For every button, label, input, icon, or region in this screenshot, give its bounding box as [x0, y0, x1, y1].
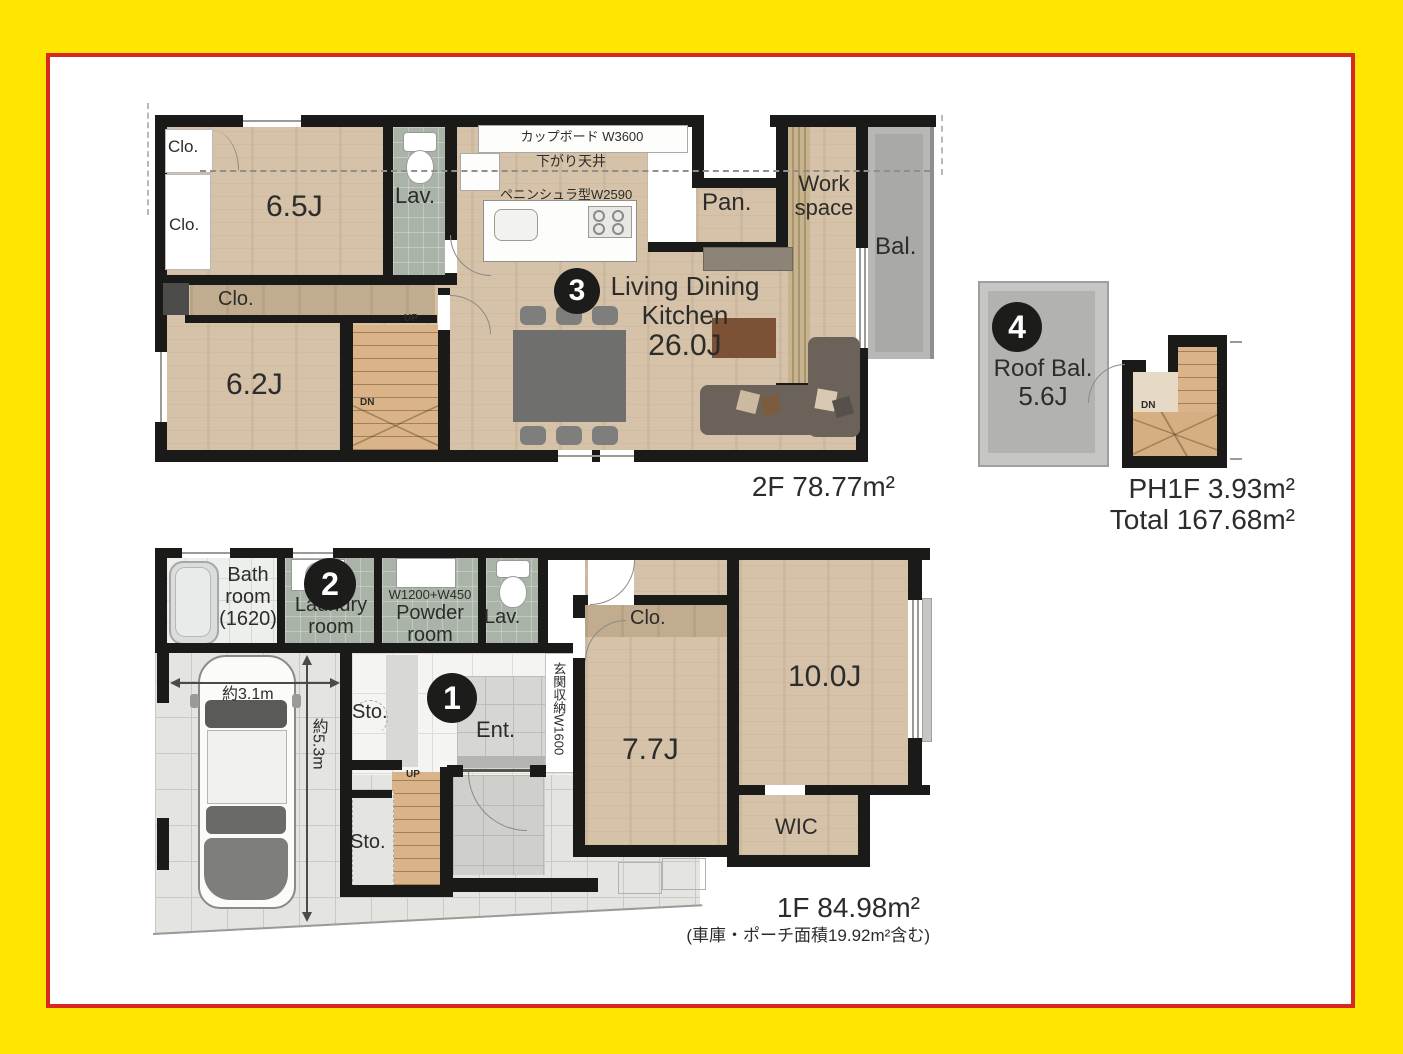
fridge — [460, 153, 500, 191]
powder-line1: Powder — [396, 602, 464, 624]
wall — [1122, 456, 1227, 468]
storage-upper-label: Sto. — [352, 701, 388, 723]
chair — [520, 426, 546, 445]
porch-step — [618, 862, 662, 894]
wic-label: WIC — [775, 815, 818, 839]
total-area-label: Total 167.68m² — [1060, 505, 1295, 536]
room-number-badge-4: 4 — [992, 302, 1042, 352]
burner-icon — [612, 210, 624, 222]
dimension-tick — [1230, 341, 1242, 343]
lowered-ceiling-label: 下がり天井 — [536, 154, 606, 169]
floorplan-canvas: Clo. Clo. 6.5J Lav. カップボード W3600 下がり天井 ペ… — [0, 0, 1403, 1054]
shoe-cabinet-label: 玄関収納W1600 — [551, 662, 565, 766]
tv-board — [703, 247, 793, 271]
cupboard-label: カップボード W3600 — [478, 130, 686, 144]
powder-width-label: W1200+W450 — [380, 588, 480, 602]
door-opening — [438, 295, 450, 330]
car-trunk — [204, 838, 288, 900]
wall — [538, 548, 548, 648]
entrance-label: Ent. — [476, 718, 515, 742]
car-width-label: 約3.1m — [222, 686, 274, 704]
wall — [185, 315, 437, 323]
workspace-line2: space — [795, 195, 854, 220]
room-10-label: 10.0J — [788, 660, 861, 693]
wall — [1217, 335, 1227, 468]
car-roof — [207, 730, 287, 804]
dim-arrow-horizontal — [172, 682, 338, 684]
bathroom-line2: room — [225, 586, 271, 608]
wall — [340, 790, 392, 798]
burner-icon — [593, 210, 605, 222]
room-65-label: 6.5J — [266, 190, 323, 223]
arrow-head-up-icon — [302, 655, 312, 665]
arrow-head-left-icon — [170, 678, 180, 688]
chair — [520, 306, 546, 325]
floor1-area-label: 1F 84.98m² — [720, 893, 920, 924]
window-frame — [182, 552, 230, 554]
dim-arrow-vertical — [306, 657, 308, 919]
dimension-line — [147, 103, 149, 215]
stairs-up-label: UP — [404, 313, 418, 324]
wall — [447, 765, 463, 777]
pantry-label: Pan. — [702, 190, 751, 216]
sto-upper-interior — [386, 655, 418, 767]
roof-balcony-name: Roof Bal. — [994, 355, 1093, 382]
dimension-tick — [1230, 458, 1242, 460]
sofa — [808, 337, 860, 437]
ldk-line2: Kitchen — [642, 300, 729, 330]
wall — [340, 315, 353, 462]
car-depth-label: 約5.3m — [309, 718, 327, 770]
wall — [383, 123, 393, 275]
wall — [155, 275, 457, 285]
wall — [157, 818, 169, 870]
peninsula-label: ペニンシュラ型W2590 — [500, 188, 632, 202]
bathroom-line3: (1620) — [219, 608, 277, 630]
ph-dn-label: DN — [1141, 400, 1155, 411]
sliding-door-frame — [864, 248, 866, 348]
car-mirror — [292, 694, 301, 708]
room-number-badge-1: 1 — [427, 673, 477, 723]
wall — [440, 878, 598, 892]
workspace-label: Work space — [792, 172, 856, 220]
balcony-2f-label: Bal. — [875, 234, 916, 260]
burner-icon — [593, 223, 605, 235]
floor1-area-note: (車庫・ポーチ面積19.92m²含む) — [640, 927, 930, 946]
laundry-line2: room — [308, 616, 354, 638]
ph-area-label: PH1F 3.93m² — [1090, 474, 1295, 505]
vanity-icon — [396, 558, 456, 588]
window-frame — [917, 600, 919, 738]
dimension-line — [941, 115, 943, 175]
closet-77-label: Clo. — [630, 607, 666, 629]
room-number-badge-2: 2 — [304, 558, 356, 610]
wall — [727, 785, 930, 795]
wall — [340, 645, 352, 897]
storage-lower-label: Sto. — [350, 831, 386, 853]
wall — [340, 760, 402, 770]
wall — [340, 885, 453, 897]
ldk-label: Living Dining Kitchen 26.0J — [590, 272, 780, 362]
roof-balcony-size: 5.6J — [1018, 381, 1067, 411]
room-77-label: 7.7J — [622, 733, 679, 766]
ldk-size: 26.0J — [648, 329, 721, 362]
floor2-area-label: 2F 78.77m² — [700, 472, 895, 503]
wall — [155, 450, 868, 462]
pillar — [163, 283, 189, 315]
window-sill — [922, 598, 932, 742]
wall — [727, 855, 870, 867]
bathroom-line1: Bath — [227, 564, 268, 586]
toilet-icon — [499, 576, 527, 608]
wall — [157, 648, 169, 703]
car-windshield — [205, 700, 287, 728]
closet-label: Clo. — [169, 216, 199, 235]
bathroom-label: Bath room (1620) — [205, 564, 291, 630]
window — [908, 600, 922, 738]
burner-icon — [612, 223, 624, 235]
arrow-head-right-icon — [330, 678, 340, 688]
wall — [573, 845, 739, 857]
window-frame — [160, 352, 162, 422]
wall — [547, 548, 930, 560]
window-frame — [243, 120, 301, 122]
cushion — [760, 394, 781, 415]
workspace-line1: Work — [799, 171, 850, 196]
window-frame — [912, 600, 914, 738]
balcony-2f-rail — [930, 127, 934, 359]
wall — [155, 643, 585, 653]
wall — [776, 115, 788, 252]
closet-62-label: Clo. — [218, 288, 254, 310]
wall — [530, 765, 546, 777]
stairs-up-label-1f: UP — [406, 769, 420, 780]
lav1f-label: Lav. — [484, 606, 520, 628]
chair — [592, 426, 618, 445]
stairs-dn-label: DN — [360, 397, 374, 408]
car-mirror — [190, 694, 199, 708]
toilet-icon — [403, 132, 437, 152]
chair — [556, 426, 582, 445]
window-frame — [558, 455, 634, 457]
car-rear-window — [206, 806, 286, 834]
sliding-door-frame — [859, 248, 861, 348]
door-opening — [765, 785, 805, 795]
closet-label: Clo. — [168, 138, 198, 157]
toilet-icon — [406, 150, 434, 184]
door-opening — [573, 618, 585, 658]
window-frame — [293, 552, 333, 554]
powder-line2: room — [407, 624, 453, 646]
ldk-line1: Living Dining — [611, 271, 760, 301]
roof-balcony-label: Roof Bal. 5.6J — [985, 356, 1101, 411]
wall — [692, 178, 784, 188]
sliding-door — [856, 248, 868, 348]
stairs-1f — [392, 772, 440, 885]
wall — [1168, 335, 1178, 372]
wall — [770, 115, 936, 127]
powder-label: Powder room — [380, 602, 480, 646]
room-62-label: 6.2J — [226, 368, 283, 401]
sink-icon — [494, 209, 538, 241]
wall — [155, 548, 167, 648]
wall — [727, 560, 739, 857]
porch-step — [662, 858, 706, 890]
arrow-head-down-icon — [302, 912, 312, 922]
ph-stairs-fan — [1133, 412, 1217, 456]
ph-landing — [1133, 372, 1178, 414]
lav2f-label: Lav. — [395, 184, 435, 208]
